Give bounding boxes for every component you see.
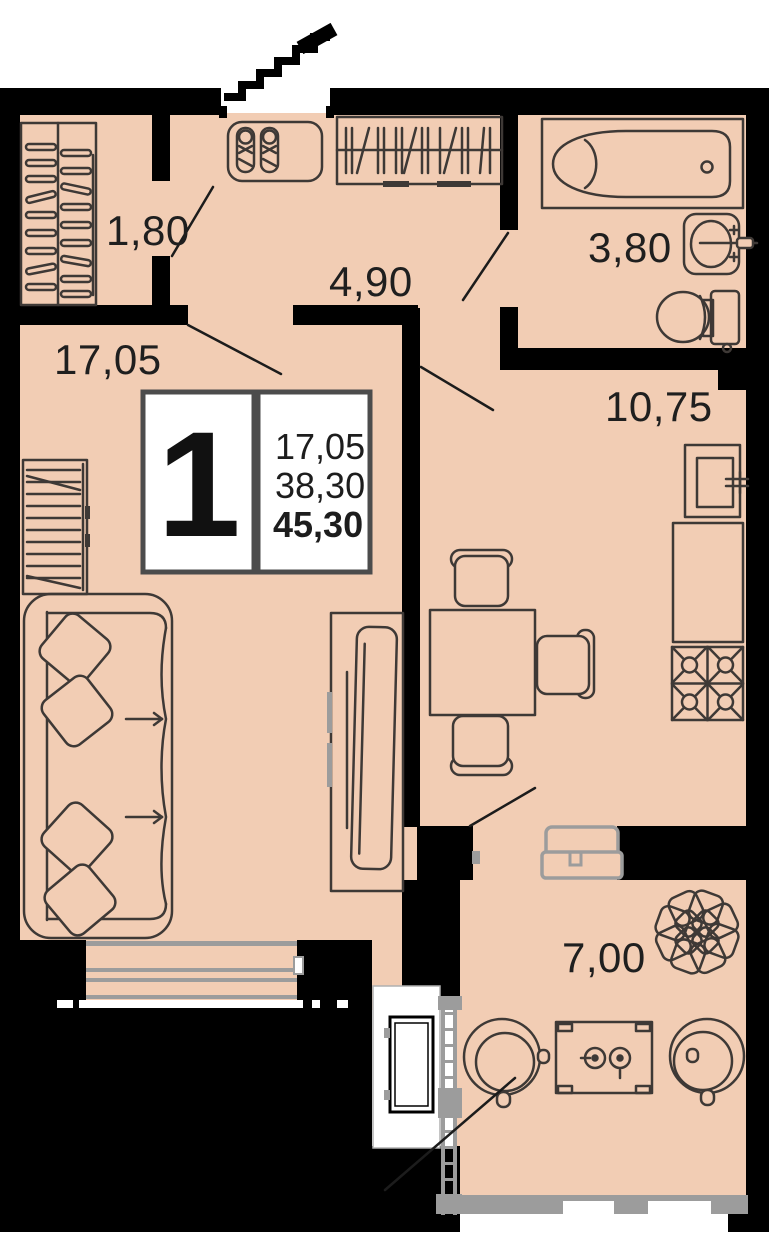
room-label-kitchen: 10,75 [605, 383, 713, 430]
floor-plan: 1,80 4,90 3,80 17,05 10,75 7,00 1 17,05 … [0, 0, 769, 1239]
unit-number: 1 [157, 400, 240, 568]
total-area-value: 45,30 [273, 504, 363, 545]
stove-icon [672, 647, 743, 720]
neighbour-balcony [373, 986, 440, 1148]
unit-info-box: 1 17,05 38,30 45,30 [143, 392, 370, 572]
chair-icon [537, 630, 594, 698]
floor-plan-svg: 1,80 4,90 3,80 17,05 10,75 7,00 1 17,05 … [0, 0, 769, 1239]
chair-icon [451, 716, 512, 775]
room-label-living-room: 17,05 [54, 336, 162, 383]
room-label-balcony: 7,00 [562, 934, 646, 981]
washing-machine-icon [384, 1017, 433, 1112]
area-no-balcony-value: 38,30 [275, 465, 365, 506]
living-area-value: 17,05 [275, 426, 365, 467]
room-label-bathroom: 3,80 [588, 224, 672, 271]
balcony-railing [455, 1195, 748, 1214]
room-label-hallway: 4,90 [329, 258, 413, 305]
entrance-stairs-icon [224, 29, 334, 97]
balcony-table-icon [556, 1022, 652, 1093]
chair-icon [451, 550, 512, 606]
room-label-closet: 1,80 [106, 207, 190, 254]
